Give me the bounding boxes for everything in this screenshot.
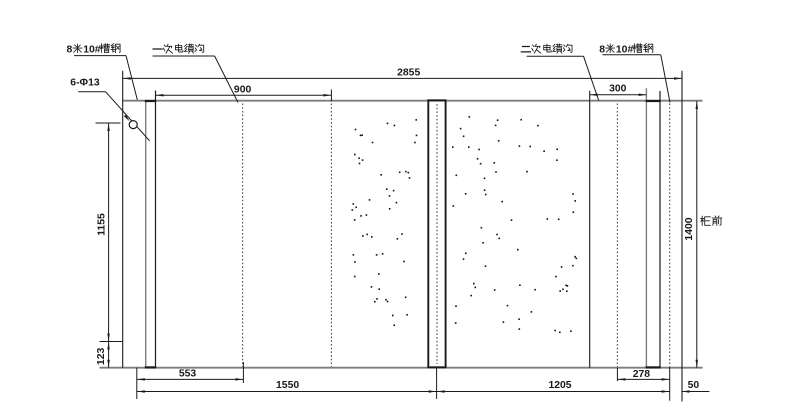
svg-text:300: 300 xyxy=(609,84,627,95)
svg-text:8: 8 xyxy=(67,45,73,56)
svg-text:278: 278 xyxy=(633,369,651,380)
svg-text:8: 8 xyxy=(599,45,605,56)
svg-text:900: 900 xyxy=(234,84,252,95)
svg-text:123: 123 xyxy=(96,348,107,366)
svg-text:1155: 1155 xyxy=(97,213,108,236)
svg-text:553: 553 xyxy=(179,369,197,380)
svg-text:1205: 1205 xyxy=(548,380,571,391)
svg-text:10#: 10# xyxy=(83,45,101,56)
svg-text:2855: 2855 xyxy=(397,68,420,79)
svg-text:50: 50 xyxy=(688,380,700,391)
svg-text:1400: 1400 xyxy=(684,217,695,240)
svg-text:6-Φ13: 6-Φ13 xyxy=(70,77,100,88)
svg-text:1550: 1550 xyxy=(276,380,299,391)
svg-text:10#: 10# xyxy=(616,45,634,56)
